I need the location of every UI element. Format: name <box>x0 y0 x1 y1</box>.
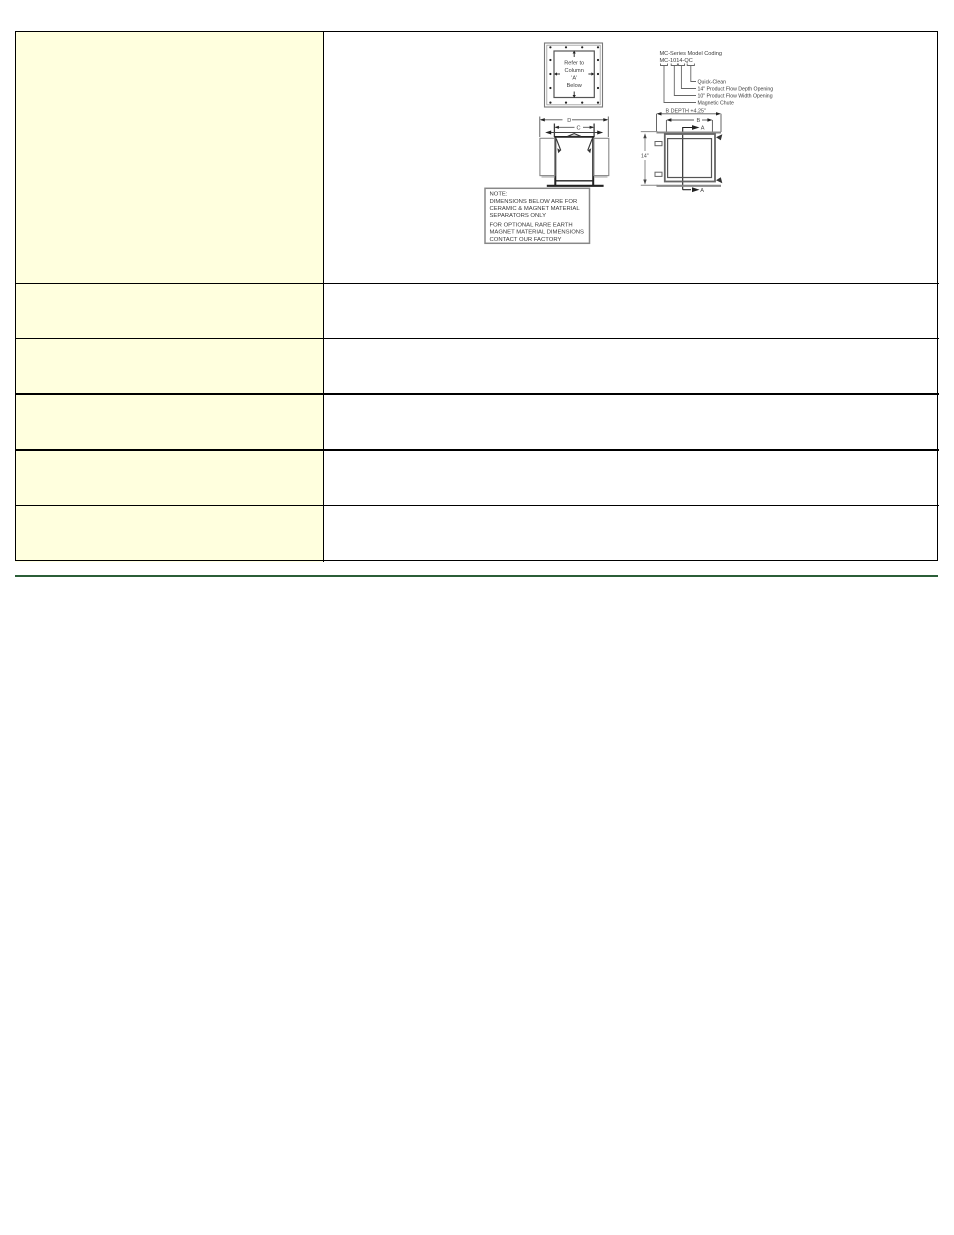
svg-text:Refer to: Refer to <box>564 61 584 67</box>
svg-text:C: C <box>577 126 581 132</box>
svg-text:Magnetic Chute: Magnetic Chute <box>698 100 734 106</box>
svg-text:B: B <box>697 118 701 124</box>
svg-text:MC-Series Model Coding: MC-Series Model Coding <box>660 51 723 57</box>
svg-text:14": 14" <box>641 154 649 160</box>
svg-text:MC-1014-QC: MC-1014-QC <box>660 58 693 64</box>
svg-text:NOTE:: NOTE: <box>490 192 508 198</box>
svg-text:MAGNET MATERIAL DIMENSIONS: MAGNET MATERIAL DIMENSIONS <box>490 230 585 236</box>
svg-text:10" Product Flow Width Opening: 10" Product Flow Width Opening <box>698 93 773 99</box>
svg-text:CERAMIC & MAGNET MATERIAL: CERAMIC & MAGNET MATERIAL <box>490 206 581 212</box>
svg-text:CONTACT OUR FACTORY: CONTACT OUR FACTORY <box>490 237 562 243</box>
svg-text:DIMENSIONS BELOW ARE FOR: DIMENSIONS BELOW ARE FOR <box>490 199 578 205</box>
svg-text:SEPARATORS ONLY: SEPARATORS ONLY <box>490 213 547 219</box>
svg-text:Quick-Clean: Quick-Clean <box>698 79 727 85</box>
svg-text:'A': 'A' <box>571 76 577 82</box>
svg-text:A: A <box>701 126 705 132</box>
svg-text:Below: Below <box>567 83 583 89</box>
svg-text:FOR OPTIONAL RARE EARTH: FOR OPTIONAL RARE EARTH <box>490 222 573 228</box>
svg-text:Column: Column <box>565 68 584 74</box>
svg-text:D: D <box>567 118 571 124</box>
svg-text:14" Product Flow Depth Opening: 14" Product Flow Depth Opening <box>698 86 774 92</box>
svg-text:A: A <box>700 188 704 194</box>
